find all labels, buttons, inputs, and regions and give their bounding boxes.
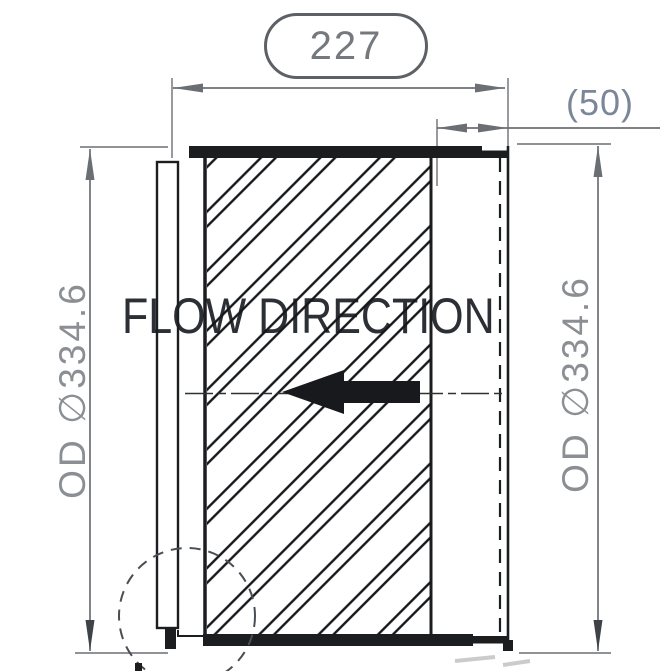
gasket-foot (165, 628, 176, 649)
arrow-up-icon (86, 149, 95, 180)
dim-overall-length (172, 78, 508, 158)
flow-direction-label: FLOW DIRECTION (122, 287, 495, 345)
od-diameter-label-right: OD ∅334.6 (554, 234, 598, 534)
arrow-left-icon (437, 124, 467, 133)
filter-media-hatch (207, 158, 431, 634)
arrow-right-icon (478, 124, 508, 133)
balloon-dimension-value: 227 (310, 24, 383, 69)
left-gasket (157, 162, 178, 628)
flow-arrow-icon (282, 370, 420, 414)
top-clamp-band (189, 146, 482, 158)
dim-reference-50 (437, 119, 660, 186)
filter-body (157, 146, 513, 651)
arrow-right-icon (475, 84, 505, 93)
technical-drawing: FLOW DIRECTION (0, 0, 671, 671)
arrow-left-icon (173, 84, 203, 93)
od-diameter-label-left: OD ∅334.6 (51, 240, 95, 540)
bottom-clamp-band (203, 634, 473, 646)
arrow-down-icon (86, 620, 95, 651)
detail-callout-circle (119, 548, 255, 671)
cutoff-mark (135, 663, 142, 671)
reference-dimension-50: (50) (548, 83, 652, 123)
scan-smudge (503, 661, 530, 665)
balloon-dimension-227: 227 (264, 13, 428, 79)
scan-smudge (455, 657, 495, 661)
arrow-down-icon (594, 620, 603, 651)
arrow-up-icon (594, 146, 603, 177)
